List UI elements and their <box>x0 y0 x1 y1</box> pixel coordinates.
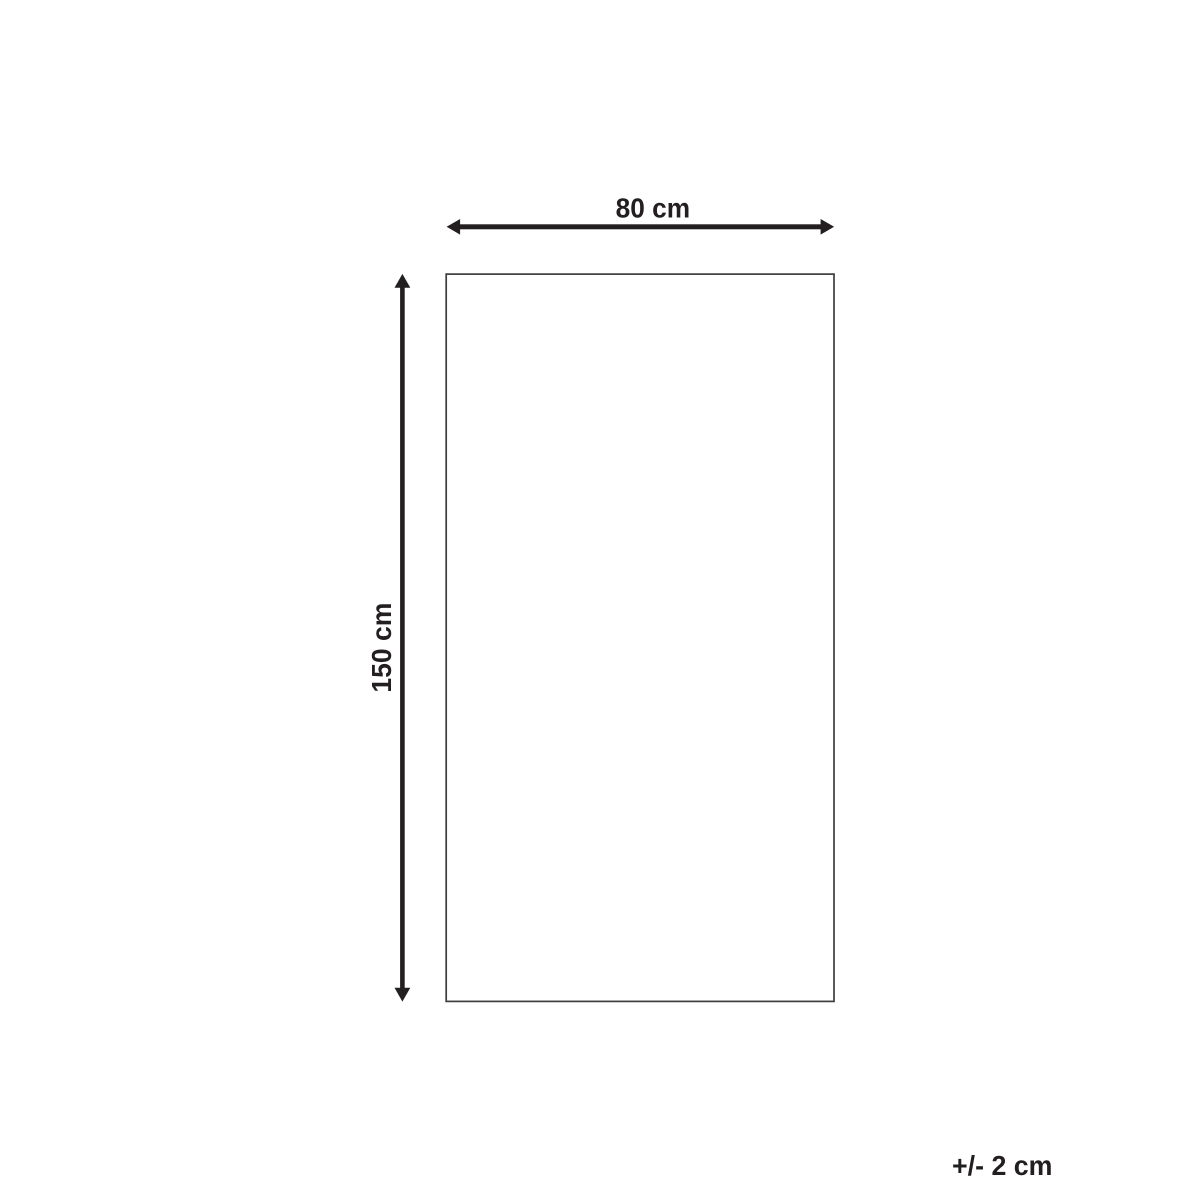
svg-text:150 cm: 150 cm <box>366 603 397 693</box>
svg-text:+/- 2 cm: +/- 2 cm <box>952 1150 1053 1181</box>
svg-text:80 cm: 80 cm <box>616 193 691 224</box>
